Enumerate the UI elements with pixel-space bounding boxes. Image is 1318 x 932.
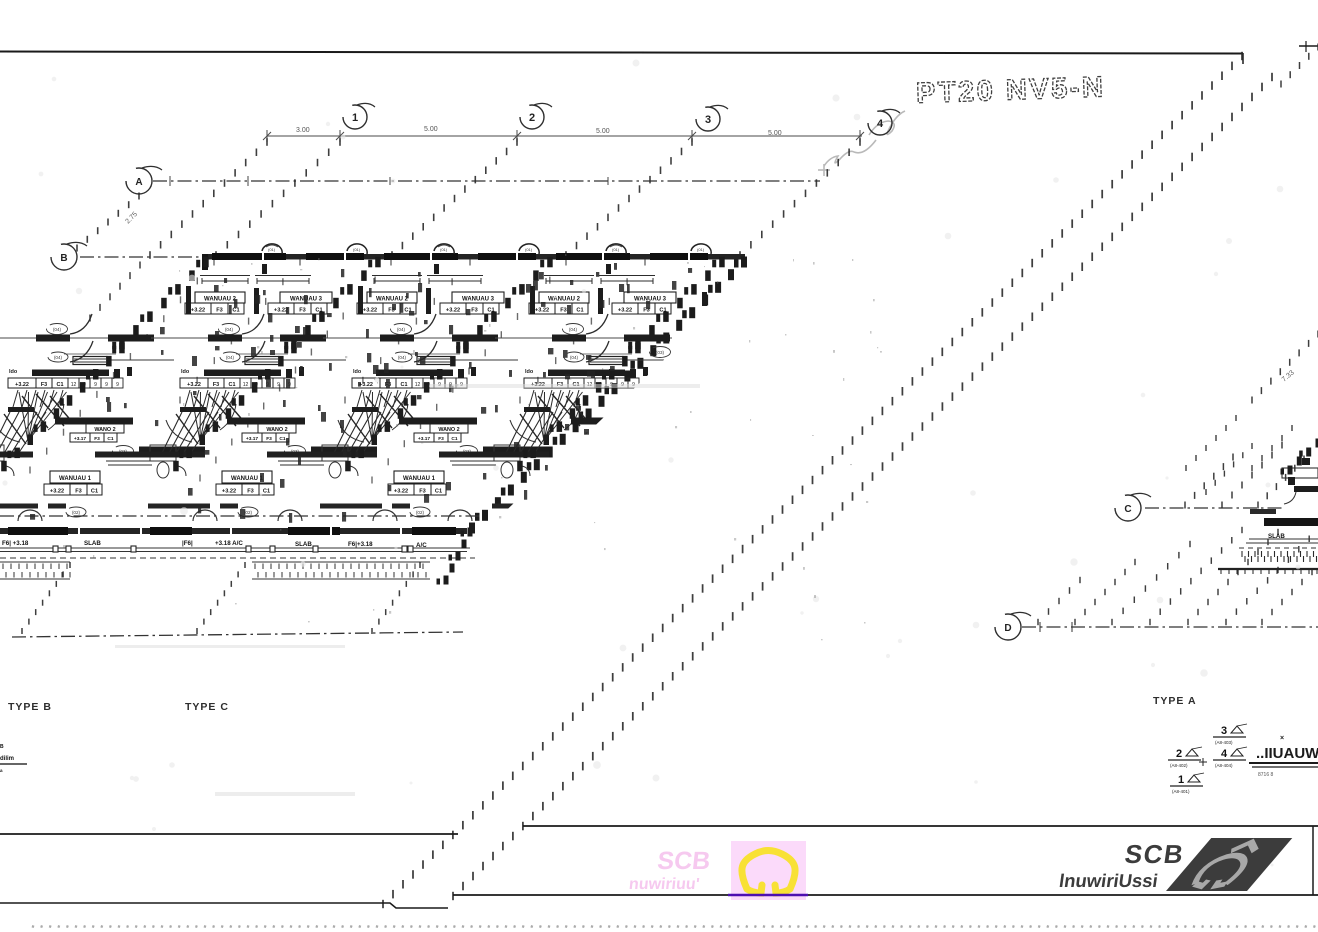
svg-text:lnuwiriUssi: lnuwiriUssi [1058, 870, 1160, 891]
svg-text:TYPE C: TYPE C [185, 701, 229, 713]
svg-text:(01): (01) [268, 247, 276, 252]
svg-text:SLAB: SLAB [84, 540, 101, 547]
svg-text:F3: F3 [213, 382, 219, 388]
svg-text:C: C [1124, 504, 1131, 515]
svg-text:A: A [135, 177, 142, 188]
svg-text:ldo: ldo [9, 369, 18, 375]
svg-text:SCB: SCB [656, 847, 712, 875]
svg-text:+3.22: +3.22 [446, 308, 460, 314]
svg-text:(04): (04) [570, 355, 579, 360]
svg-text:..IIUAUWUU: ..IIUAUWUU [1256, 745, 1318, 762]
svg-text:(A8-403): (A8-403) [1215, 740, 1233, 745]
svg-text:×: × [1280, 735, 1284, 742]
svg-text:(04): (04) [54, 355, 63, 360]
svg-text:9: 9 [116, 382, 119, 388]
svg-text:+3.17: +3.17 [74, 436, 86, 442]
svg-text:5.00: 5.00 [596, 128, 610, 135]
svg-text:C1: C1 [451, 436, 457, 442]
svg-text:(04): (04) [397, 327, 406, 332]
svg-text:C1: C1 [279, 436, 285, 442]
svg-text:F3: F3 [266, 436, 272, 442]
svg-text:B: B [60, 253, 67, 264]
svg-text:(04): (04) [53, 327, 62, 332]
svg-text:TYPE B: TYPE B [8, 701, 52, 713]
svg-text:|F6|: |F6| [182, 540, 193, 547]
svg-text:F3: F3 [419, 489, 426, 495]
svg-text:C1: C1 [107, 436, 113, 442]
svg-text:ldo: ldo [353, 369, 362, 375]
svg-text:(01): (01) [353, 247, 361, 252]
svg-text:4: 4 [877, 118, 884, 130]
svg-text:+3.18 A/C: +3.18 A/C [215, 540, 243, 547]
svg-text:F3: F3 [299, 308, 306, 314]
svg-text:C1: C1 [576, 308, 583, 314]
svg-text:F3: F3 [438, 436, 444, 442]
svg-text:F3: F3 [471, 308, 478, 314]
svg-text:PT20 NV5-N: PT20 NV5-N [916, 71, 1106, 110]
svg-text:3.00: 3.00 [296, 127, 310, 134]
svg-text:+3.22: +3.22 [618, 308, 632, 314]
svg-text:F3: F3 [247, 489, 254, 495]
svg-text:F3: F3 [41, 382, 47, 388]
svg-text:4: 4 [1221, 748, 1228, 760]
svg-text:3: 3 [1221, 725, 1227, 737]
svg-text:(A8-404): (A8-404) [1215, 763, 1233, 768]
svg-text:2: 2 [1176, 748, 1182, 760]
svg-text:+3.22: +3.22 [187, 382, 201, 388]
svg-text:8716 8: 8716 8 [1258, 772, 1274, 778]
svg-text:(01): (01) [612, 247, 620, 252]
svg-text:+3.17: +3.17 [246, 436, 258, 442]
svg-text:(01): (01) [440, 247, 448, 252]
svg-text:WANUAU 2: WANUAU 2 [376, 297, 409, 303]
svg-text:+3.22: +3.22 [50, 489, 64, 495]
svg-text:(04): (04) [226, 355, 235, 360]
svg-text:ldo: ldo [525, 369, 534, 375]
svg-text:C1: C1 [229, 382, 236, 388]
svg-text:F3: F3 [75, 489, 82, 495]
svg-text:+3.22: +3.22 [363, 308, 377, 314]
svg-text:12: 12 [243, 382, 249, 388]
svg-text:(A8-402): (A8-402) [1170, 763, 1188, 768]
svg-text:9: 9 [105, 382, 108, 388]
svg-text:C1: C1 [57, 382, 64, 388]
svg-text:5.00: 5.00 [424, 126, 438, 133]
svg-text:+3.22: +3.22 [274, 308, 288, 314]
svg-text:12: 12 [415, 382, 421, 388]
svg-text:SLAB: SLAB [295, 541, 312, 548]
svg-text:(04): (04) [569, 327, 578, 332]
svg-text:F6| +3.18: F6| +3.18 [2, 540, 29, 547]
svg-text:nuwiriuu': nuwiriuu' [628, 875, 700, 893]
svg-text:9: 9 [94, 382, 97, 388]
svg-text:WANUAU 3: WANUAU 3 [634, 297, 667, 303]
svg-text:+3.17: +3.17 [418, 436, 430, 442]
svg-text:+3.22: +3.22 [15, 382, 29, 388]
svg-text:F3: F3 [94, 436, 100, 442]
svg-text:+3.22: +3.22 [191, 308, 205, 314]
svg-text:C1: C1 [401, 382, 408, 388]
svg-text:WANO 2: WANO 2 [438, 427, 459, 433]
svg-text:1: 1 [352, 112, 358, 124]
svg-text:WANUAU 1: WANUAU 1 [59, 476, 92, 482]
svg-text:WANO 2: WANO 2 [266, 427, 287, 433]
svg-text:C1: C1 [232, 308, 239, 314]
svg-text:2: 2 [529, 112, 535, 124]
svg-text:5.00: 5.00 [768, 130, 782, 137]
svg-text:WANUAU 1: WANUAU 1 [403, 476, 436, 482]
svg-text:F3: F3 [560, 308, 567, 314]
svg-text:(A8-401): (A8-401) [1172, 789, 1190, 794]
svg-text:(04): (04) [225, 327, 234, 332]
svg-text:F6|+3.18: F6|+3.18 [348, 541, 373, 548]
svg-text:F3: F3 [216, 308, 223, 314]
svg-text:ldo: ldo [181, 369, 190, 375]
svg-text:(01): (01) [525, 247, 533, 252]
svg-text:WANUAU 2: WANUAU 2 [548, 297, 581, 303]
svg-text:12: 12 [71, 382, 77, 388]
svg-text:+3.22: +3.22 [222, 489, 236, 495]
svg-text:TYPE A: TYPE A [1153, 695, 1197, 707]
svg-text:WANO 2: WANO 2 [94, 427, 115, 433]
svg-text:1: 1 [1178, 774, 1184, 786]
svg-text:C1: C1 [435, 489, 442, 495]
svg-text:+3.22: +3.22 [359, 382, 373, 388]
svg-text:(02): (02) [72, 510, 81, 515]
svg-text:C1: C1 [263, 489, 270, 495]
svg-text:(03): (03) [656, 350, 665, 355]
svg-text:WANUAU 3: WANUAU 3 [462, 297, 495, 303]
svg-text:+3.22: +3.22 [394, 489, 408, 495]
svg-text:9: 9 [277, 382, 280, 388]
svg-text:D: D [1004, 623, 1011, 634]
svg-text:B: B [0, 744, 4, 750]
svg-text:(02): (02) [416, 510, 425, 515]
svg-text:(04): (04) [398, 355, 407, 360]
svg-text:C1: C1 [91, 489, 98, 495]
svg-text:+3.22: +3.22 [535, 308, 549, 314]
svg-text:(01): (01) [697, 247, 705, 252]
svg-text:SCB: SCB [1123, 839, 1187, 869]
svg-text:3: 3 [705, 114, 711, 126]
svg-text:WANUAU 2: WANUAU 2 [204, 297, 237, 303]
svg-text:WANUAU 1: WANUAU 1 [231, 476, 264, 482]
svg-text:dilim: dilim [0, 756, 14, 762]
